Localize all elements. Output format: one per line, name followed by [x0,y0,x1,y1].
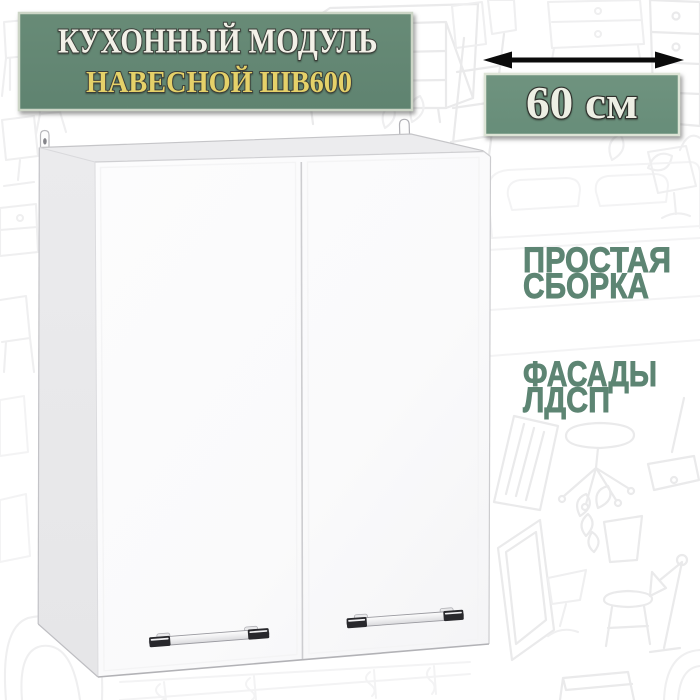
svg-text:60 см: 60 см [526,77,638,128]
svg-text:ЛДСП: ЛДСП [523,380,610,420]
svg-text:КУХОННЫЙ МОДУЛЬ: КУХОННЫЙ МОДУЛЬ [58,23,378,61]
svg-text:СБОРКА: СБОРКА [523,266,649,306]
svg-text:НАВЕСНОЙ ШВ600: НАВЕСНОЙ ШВ600 [86,64,352,99]
